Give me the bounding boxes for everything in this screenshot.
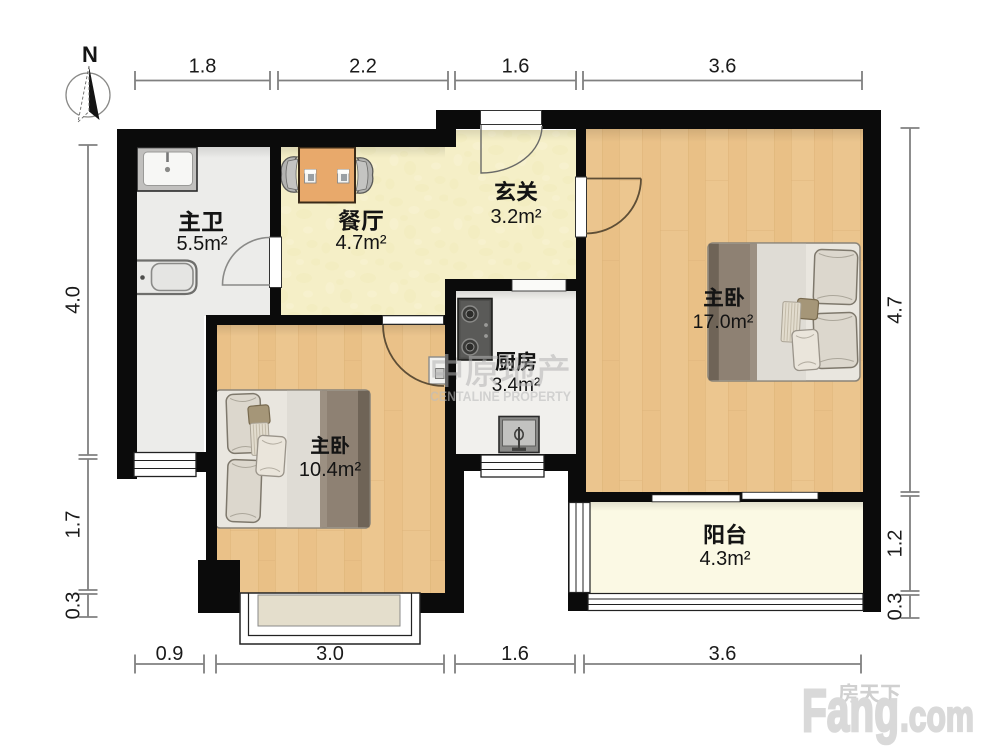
svg-text:0.3: 0.3 [62,592,84,620]
svg-text:3.6: 3.6 [709,643,737,665]
svg-text:Fang: Fang [802,677,899,744]
svg-text:10.4m²: 10.4m² [299,459,362,481]
svg-text:3.2m²: 3.2m² [490,206,541,228]
svg-text:.com: .com [900,692,974,741]
svg-text:4.7m²: 4.7m² [335,232,386,254]
svg-text:4.3m²: 4.3m² [699,548,750,570]
svg-text:3.6: 3.6 [709,56,737,78]
svg-text:N: N [82,42,98,67]
svg-text:5.5m²: 5.5m² [176,233,227,255]
svg-text:17.0m²: 17.0m² [693,311,754,333]
svg-text:4.7: 4.7 [884,296,906,324]
svg-text:1.7: 1.7 [62,511,84,539]
svg-text:1.6: 1.6 [501,643,529,665]
svg-text:1.2: 1.2 [884,530,906,558]
svg-text:0.3: 0.3 [884,593,906,621]
svg-text:0.9: 0.9 [156,643,184,665]
svg-text:1.6: 1.6 [502,56,530,78]
svg-text:2.2: 2.2 [349,56,377,78]
svg-text:CENTALINE PROPERTY: CENTALINE PROPERTY [430,389,571,404]
svg-text:4.0: 4.0 [62,286,84,314]
svg-text:1.8: 1.8 [189,56,217,78]
svg-text:3.0: 3.0 [316,643,344,665]
